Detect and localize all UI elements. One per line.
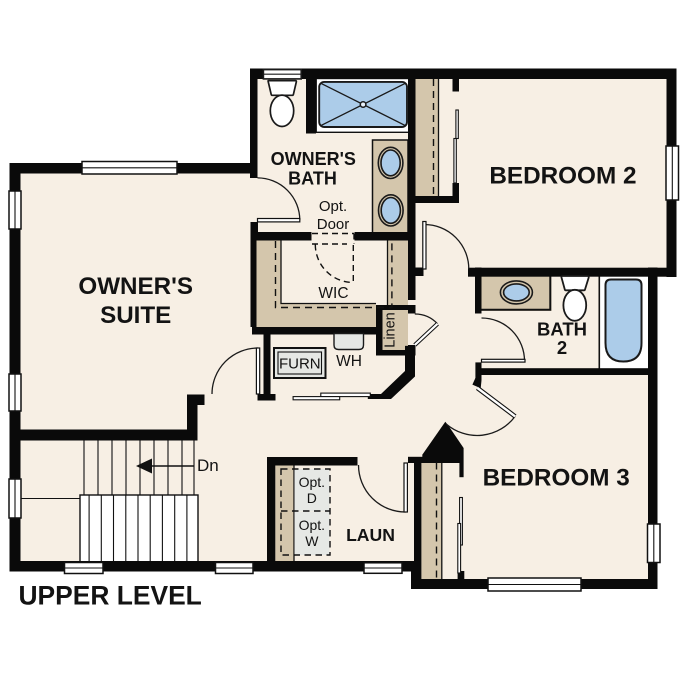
svg-text:LAUN: LAUN [346,525,395,545]
svg-text:BEDROOM 3: BEDROOM 3 [483,465,630,492]
svg-text:2: 2 [557,337,567,358]
svg-text:Door: Door [317,216,350,233]
svg-text:BEDROOM 2: BEDROOM 2 [489,163,636,190]
svg-text:OWNER'S: OWNER'S [78,273,193,300]
svg-text:WIC: WIC [318,285,348,302]
svg-text:Opt.: Opt. [299,517,325,533]
svg-text:WH: WH [336,353,362,370]
svg-text:Dn: Dn [197,456,219,475]
svg-text:Opt.: Opt. [319,198,347,215]
svg-text:D: D [307,490,317,506]
svg-text:UPPER LEVEL: UPPER LEVEL [19,581,202,611]
svg-text:W: W [305,533,319,549]
svg-text:OWNER'S: OWNER'S [271,149,356,169]
svg-text:BATH: BATH [288,168,337,188]
svg-text:FURN: FURN [279,356,321,373]
svg-text:Linen: Linen [383,312,399,347]
svg-text:Opt.: Opt. [299,474,325,490]
svg-text:SUITE: SUITE [100,302,171,329]
